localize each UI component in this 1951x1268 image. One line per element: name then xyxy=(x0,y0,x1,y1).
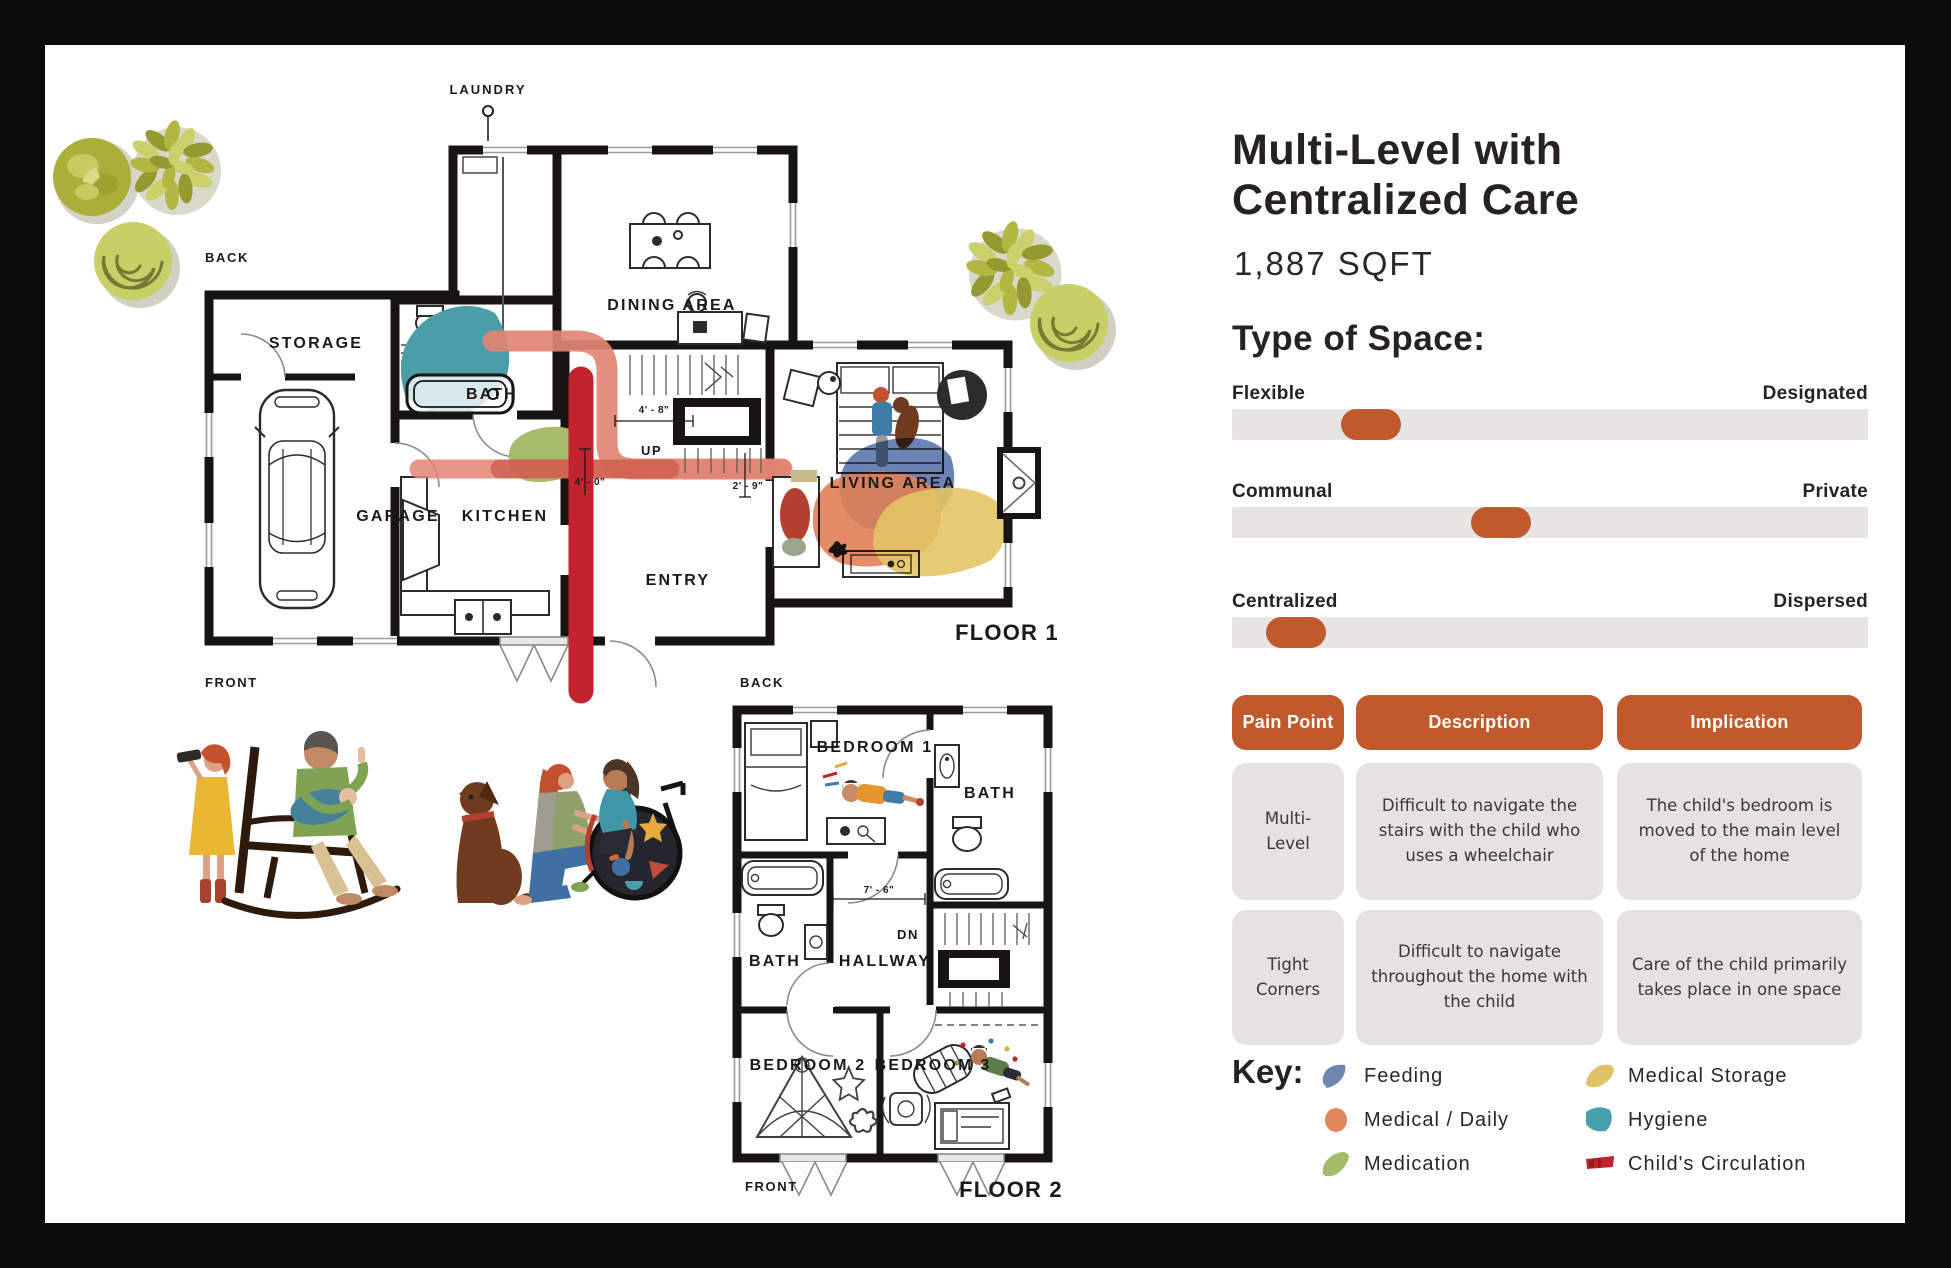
room-entry xyxy=(565,345,770,641)
slider-left-label: Flexible xyxy=(1232,383,1305,405)
key-item-medical-storage: Medical Storage xyxy=(1584,1059,1788,1093)
slider-handle[interactable] xyxy=(1266,617,1326,648)
stairs-label-up: UP xyxy=(641,443,662,458)
laundry-pin xyxy=(483,106,493,116)
floor1-title: FLOOR 1 xyxy=(955,620,1059,645)
table-cell: Difficult to navigate the stairs with th… xyxy=(1356,763,1603,900)
feeding-swatch-icon xyxy=(1320,1062,1352,1090)
dim-label: 4' - 8" xyxy=(639,405,670,416)
square-footage: 1,887 SQFT xyxy=(1234,245,1434,283)
slider-track[interactable] xyxy=(1232,409,1868,440)
table-header-implication: Implication xyxy=(1617,695,1862,750)
plan-label-back: BACK xyxy=(205,250,249,265)
room-label-entry: ENTRY xyxy=(646,572,711,589)
room-label-bath-lower: BATH xyxy=(749,953,801,970)
plan-label-front: FRONT xyxy=(205,675,258,690)
hygiene-swatch-icon xyxy=(1584,1106,1616,1134)
room-label-dining: DINING AREA xyxy=(607,297,736,314)
plan-label-back: BACK xyxy=(740,675,784,690)
dim-label: 4' - 0" xyxy=(575,477,606,488)
slider-right-label: Dispersed xyxy=(1773,591,1868,613)
slider-left-label: Centralized xyxy=(1232,591,1338,613)
family-illustration xyxy=(176,731,683,915)
key-item-childs-circulation: Child's Circulation xyxy=(1584,1147,1806,1181)
table-cell: Tight Corners xyxy=(1232,910,1344,1045)
dog-figure xyxy=(457,781,532,905)
room-label-laundry: LAUNDRY xyxy=(449,82,526,97)
medical-storage-swatch-icon xyxy=(1584,1062,1616,1090)
floor1-plan: 4' - 8" 4' - 0" 2' - 9" xyxy=(204,82,1059,691)
slider-right-label: Designated xyxy=(1763,383,1868,405)
room-label-bedroom2: BEDROOM 2 xyxy=(750,1057,867,1074)
key-heading: Key: xyxy=(1232,1053,1304,1091)
stairs-label-dn: DN xyxy=(897,927,919,942)
table-cell: Multi-Level xyxy=(1232,763,1344,900)
plan-label-front: FRONT xyxy=(745,1179,798,1194)
room-label-storage: STORAGE xyxy=(269,335,363,352)
room-label-bath1: BATH xyxy=(466,386,518,403)
medication-swatch-icon xyxy=(1320,1150,1352,1178)
dim-label: 2' - 9" xyxy=(733,481,764,492)
slider-handle[interactable] xyxy=(1341,409,1401,440)
living-entry-porch xyxy=(1000,450,1038,516)
slider-track[interactable] xyxy=(1232,617,1868,648)
floor2-plan: 7' - 6" xyxy=(732,675,1063,1202)
room-label-garage: GARAGE xyxy=(356,508,439,525)
room-label-kitchen: KITCHEN xyxy=(462,508,549,525)
room-label-bedroom3: BEDROOM 3 xyxy=(875,1057,992,1074)
dim-label: 7' - 6" xyxy=(864,885,895,896)
table-header-description: Description xyxy=(1356,695,1603,750)
slider-left-label: Communal xyxy=(1232,481,1333,503)
type-of-space-heading: Type of Space: xyxy=(1232,319,1485,359)
floor-plans-artwork: 4' - 8" 4' - 0" 2' - 9" xyxy=(45,45,1206,1223)
key-item-hygiene: Hygiene xyxy=(1584,1103,1708,1137)
room-label-bath-upper: BATH xyxy=(964,785,1016,802)
key-item-feeding: Feeding xyxy=(1320,1059,1443,1093)
table-cell: Difficult to navigate throughout the hom… xyxy=(1356,910,1603,1045)
car-icon xyxy=(255,390,339,608)
slider-handle[interactable] xyxy=(1471,507,1531,538)
man-in-rocking-chair-figure xyxy=(225,731,398,915)
front-door-chevrons xyxy=(500,637,568,681)
table-cell: The child's bedroom is moved to the main… xyxy=(1617,763,1862,900)
room-label-bedroom1: BEDROOM 1 xyxy=(817,739,934,756)
page-title: Multi-Level with Centralized Care xyxy=(1232,125,1579,226)
room-label-living: LIVING AREA xyxy=(830,475,957,492)
room-label-hallway: HALLWAY xyxy=(839,953,931,970)
childs-circulation-swatch-icon xyxy=(1584,1150,1616,1178)
slider-right-label: Private xyxy=(1803,481,1868,503)
key-item-medication: Medication xyxy=(1320,1147,1471,1181)
floor2-title: FLOOR 2 xyxy=(959,1177,1063,1202)
poster-canvas: 4' - 8" 4' - 0" 2' - 9" xyxy=(45,45,1905,1223)
girl-figure xyxy=(176,744,235,903)
poster-frame: 4' - 8" 4' - 0" 2' - 9" xyxy=(0,0,1951,1268)
slider-track[interactable] xyxy=(1232,507,1868,538)
table-cell: Care of the child primarily takes place … xyxy=(1617,910,1862,1045)
key-item-medical-daily: Medical / Daily xyxy=(1320,1103,1509,1137)
medical-daily-swatch-icon xyxy=(1320,1106,1352,1134)
wheelchair-child-figure xyxy=(571,759,683,898)
table-header-pain-point: Pain Point xyxy=(1232,695,1344,750)
